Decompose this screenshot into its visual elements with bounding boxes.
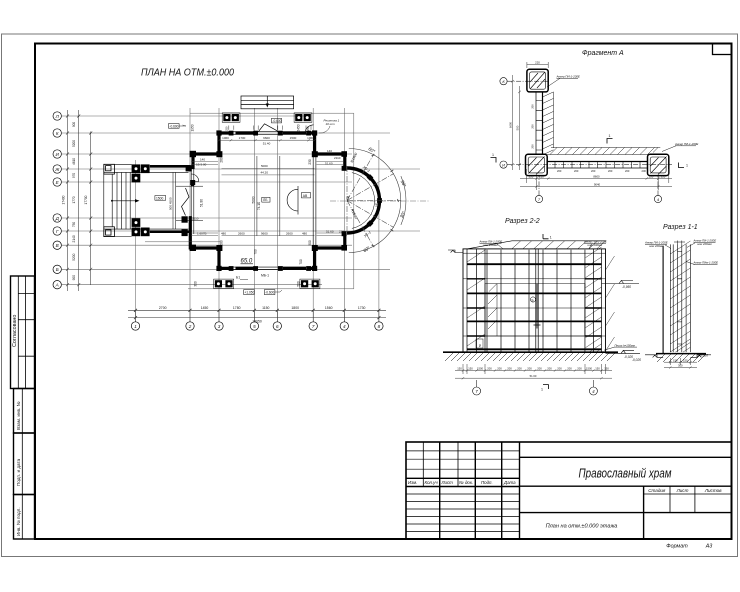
svg-text:700: 700: [299, 259, 303, 265]
svg-text:8: 8: [378, 324, 381, 329]
svg-text:220: 220: [661, 175, 666, 179]
svg-text:Кол.уч: Кол.уч: [425, 480, 439, 485]
svg-text:50: 50: [478, 343, 482, 347]
svg-text:13050: 13050: [252, 320, 262, 324]
svg-text:250: 250: [306, 126, 310, 131]
svg-text:2600: 2600: [238, 231, 245, 235]
svg-text:900: 900: [72, 275, 76, 281]
svg-text:200: 200: [547, 366, 552, 370]
svg-text:1780: 1780: [233, 306, 241, 310]
svg-text:В: В: [56, 243, 59, 248]
svg-text:1770: 1770: [72, 196, 76, 203]
svg-text:140: 140: [327, 149, 332, 153]
svg-text:ЛБ: ЛБ: [263, 198, 268, 202]
svg-text:1450: 1450: [201, 306, 209, 310]
svg-text:1: 1: [492, 153, 494, 157]
svg-text:Инв. № подл.: Инв. № подл.: [16, 507, 21, 536]
svg-text:150: 150: [468, 366, 473, 370]
svg-text:1560: 1560: [325, 306, 333, 310]
svg-text:200: 200: [642, 169, 647, 173]
svg-text:5000: 5000: [261, 164, 268, 168]
svg-text:7: 7: [312, 324, 315, 329]
svg-text:2110: 2110: [192, 216, 199, 220]
svg-text:Анкер ПИ-1-200Е: Анкер ПИ-1-200Е: [674, 142, 698, 146]
svg-text:280: 280: [220, 157, 224, 163]
svg-text:АВ: АВ: [303, 194, 308, 198]
svg-text:1730: 1730: [358, 306, 366, 310]
svg-text:1060: 1060: [222, 136, 229, 140]
svg-text:220: 220: [649, 175, 654, 179]
svg-text:200: 200: [507, 366, 512, 370]
svg-text:140: 140: [200, 158, 205, 162]
svg-text:220: 220: [539, 175, 544, 179]
svg-text:R: R: [347, 195, 350, 200]
svg-text:1950: 1950: [191, 124, 195, 131]
svg-text:200: 200: [517, 366, 522, 370]
svg-text:-0,950: -0,950: [622, 285, 631, 289]
svg-text:2700: 2700: [159, 306, 167, 310]
svg-text:2600: 2600: [286, 231, 293, 235]
svg-text:200: 200: [557, 169, 562, 173]
svg-text:9600: 9600: [261, 231, 268, 235]
svg-text:1: 1: [609, 134, 611, 138]
svg-text:1060: 1060: [307, 136, 314, 140]
svg-text:200: 200: [497, 366, 502, 370]
svg-text:Согласовано: Согласовано: [12, 315, 18, 347]
svg-text:План на отм.±0.000 этажа: План на отм.±0.000 этажа: [546, 524, 618, 530]
svg-text:1150: 1150: [262, 306, 269, 310]
svg-text:200: 200: [531, 124, 535, 129]
svg-text:Б: Б: [56, 267, 59, 272]
svg-text:Разрез 2-2: Разрез 2-2: [505, 218, 540, 225]
svg-text:150: 150: [604, 366, 609, 370]
svg-text:№ док.: № док.: [459, 480, 473, 485]
svg-text:200: 200: [527, 366, 532, 370]
svg-text:150: 150: [673, 358, 678, 362]
svg-text:Д: Д: [55, 216, 60, 221]
svg-text:1: 1: [686, 164, 688, 168]
svg-text:9600: 9600: [263, 136, 270, 140]
svg-text:5000: 5000: [251, 196, 255, 203]
svg-text:500: 500: [515, 125, 519, 130]
svg-text:200: 200: [608, 169, 613, 173]
svg-text:215: 215: [339, 230, 344, 234]
svg-text:3: 3: [218, 324, 221, 329]
svg-text:1: 1: [541, 388, 543, 392]
svg-text:Подп.: Подп.: [481, 480, 493, 485]
svg-text:Разрез 1-1: Разрез 1-1: [663, 224, 698, 231]
svg-text:К: К: [56, 131, 59, 136]
svg-text:200: 200: [567, 366, 572, 370]
svg-text:17400: 17400: [62, 195, 66, 204]
svg-text:Дата: Дата: [503, 480, 516, 485]
svg-text:200: 200: [625, 169, 630, 173]
svg-text:250: 250: [225, 126, 229, 131]
svg-text:5: 5: [253, 324, 256, 329]
svg-text:17700: 17700: [84, 195, 88, 204]
svg-text:51.60: 51.60: [326, 230, 334, 234]
svg-text:480: 480: [221, 231, 226, 235]
svg-text:-0.600: -0.600: [169, 124, 178, 128]
svg-text:220: 220: [529, 175, 534, 179]
svg-text:Лист: Лист: [676, 488, 689, 493]
svg-text:Песок h=150мм: Песок h=150мм: [615, 343, 635, 347]
svg-text:2450: 2450: [297, 124, 301, 131]
svg-text:200: 200: [531, 144, 535, 149]
svg-text:300: 300: [678, 364, 683, 368]
svg-text:1700: 1700: [239, 136, 246, 140]
svg-text:2: 2: [188, 324, 192, 329]
svg-text:700: 700: [254, 249, 258, 255]
svg-text:900: 900: [72, 122, 76, 128]
svg-text:Стадия: Стадия: [648, 488, 666, 493]
svg-text:6600: 6600: [508, 121, 512, 128]
svg-text:51.40: 51.40: [263, 142, 271, 146]
svg-text:200: 200: [531, 104, 535, 109]
svg-text:220: 220: [535, 60, 540, 64]
svg-text:51.60: 51.60: [325, 162, 333, 166]
svg-text:200: 200: [487, 366, 492, 370]
svg-text:-0.600: -0.600: [272, 119, 281, 123]
svg-text:А: А: [55, 283, 59, 288]
svg-text:230: 230: [308, 159, 312, 165]
svg-text:200: 200: [574, 169, 579, 173]
svg-text:200: 200: [591, 169, 596, 173]
svg-text:280: 280: [220, 240, 224, 246]
svg-text:Взам. инв. №: Взам. инв. №: [16, 401, 21, 430]
svg-text:Анкер ПИм-1-200Е: Анкер ПИм-1-200Е: [693, 261, 719, 265]
svg-text:6: 6: [276, 324, 279, 329]
svg-text:44.20: 44.20: [261, 171, 269, 175]
svg-text:970: 970: [72, 173, 76, 179]
svg-text:Анкер ПИ-1-200Е: Анкер ПИ-1-200Е: [556, 75, 580, 79]
svg-text:1: 1: [134, 324, 137, 329]
svg-text:51.60: 51.60: [530, 374, 537, 378]
svg-text:ПЛАН НА ОТМ.±0.000: ПЛАН НА ОТМ.±0.000: [141, 68, 234, 79]
svg-text:4610: 4610: [72, 158, 76, 165]
svg-text:И: И: [502, 162, 505, 167]
svg-text:750: 750: [72, 222, 76, 228]
svg-text:МБ-1: МБ-1: [261, 273, 269, 277]
svg-text:+1.050: +1.050: [245, 291, 255, 295]
svg-text:200: 200: [577, 366, 582, 370]
svg-text:200: 200: [537, 366, 542, 370]
svg-text:51.80: 51.80: [200, 199, 204, 207]
svg-text:5200: 5200: [72, 253, 76, 260]
svg-text:2110: 2110: [334, 156, 341, 160]
svg-text:Лист: Лист: [441, 480, 454, 485]
svg-text:-0,020: -0,020: [632, 358, 641, 362]
svg-text:Православный храм: Православный храм: [579, 467, 672, 481]
svg-text:1500: 1500: [290, 136, 297, 140]
svg-text:1: 1: [550, 235, 552, 239]
svg-text:1500: 1500: [586, 366, 592, 370]
svg-text:150: 150: [595, 366, 600, 370]
svg-text:5200: 5200: [72, 140, 76, 147]
svg-text:200: 200: [557, 366, 562, 370]
svg-text:Изм.: Изм.: [408, 480, 417, 485]
svg-text:4: 4: [343, 324, 346, 329]
svg-text:8600: 8600: [593, 175, 600, 179]
svg-text:150: 150: [457, 366, 462, 370]
svg-text:1Б 5.00: 1Б 5.00: [196, 162, 207, 166]
svg-text:150: 150: [683, 358, 688, 362]
svg-text:300: 300: [194, 281, 198, 287]
svg-text:2140: 2140: [72, 235, 76, 242]
svg-text:Формат: Формат: [666, 544, 688, 550]
svg-text:Листов: Листов: [704, 488, 722, 493]
svg-text:500: 500: [308, 240, 312, 246]
svg-text:-0,020: -0,020: [699, 353, 708, 357]
svg-text:1500: 1500: [156, 196, 164, 200]
svg-text:500 4500: 500 4500: [169, 197, 173, 210]
svg-text:500: 500: [297, 281, 301, 287]
svg-text:74.1Б: 74.1Б: [257, 202, 261, 210]
svg-text:10 шт: 10 шт: [326, 122, 336, 126]
svg-text:Фрагмент А: Фрагмент А: [582, 50, 624, 57]
svg-text:Подп. и дата: Подп. и дата: [16, 458, 21, 486]
svg-text:1.607Б: 1.607Б: [197, 231, 207, 235]
svg-text:-0.600: -0.600: [265, 291, 274, 295]
svg-text:480: 480: [302, 231, 307, 235]
svg-text:9040: 9040: [594, 183, 601, 187]
svg-text:Б1: Б1: [236, 275, 240, 279]
svg-text:Ж: Ж: [54, 167, 60, 172]
svg-text:А3: А3: [705, 544, 713, 550]
svg-text:1800: 1800: [291, 306, 299, 310]
svg-text:1500: 1500: [477, 366, 483, 370]
